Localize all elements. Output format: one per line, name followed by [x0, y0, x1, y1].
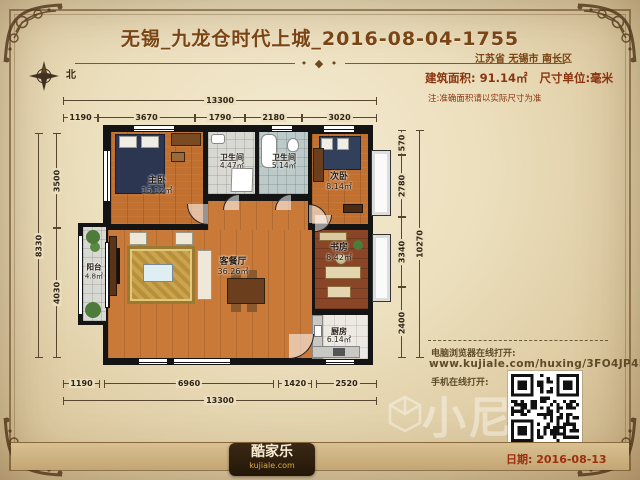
room-label-balcony: 阳台4.8㎡ — [85, 264, 103, 281]
dim-left-seg-2: 4030 — [56, 228, 57, 358]
dim-right-seg-3: 3340 — [401, 217, 402, 287]
logo-domain: kujiale.com — [229, 462, 315, 470]
building-area-value: 建筑面积: 91.14㎡ — [425, 71, 527, 85]
room-label-bath2: 卫生间5.14㎡ — [272, 153, 296, 171]
room-label-living: 客餐厅36.26㎡ — [218, 257, 249, 277]
dim-right-seg-4: 2400 — [401, 287, 402, 358]
room-label-kitchen: 厨房6.14㎡ — [327, 327, 351, 345]
dim-top-seg-1: 1190 — [63, 117, 98, 118]
bedroom2-dresser — [343, 204, 363, 213]
north-label: 北 — [66, 66, 76, 81]
dim-top-seg-2: 3670 — [98, 117, 195, 118]
study-shelf — [319, 232, 347, 241]
window-master-left — [103, 150, 111, 202]
dim-right-total: 10270 — [419, 130, 420, 358]
balcony-plant-2 — [85, 302, 101, 318]
building-area-line: 建筑面积: 91.14㎡ 尺寸单位:毫米 — [425, 70, 613, 86]
dim-right-seg-1: 570 — [401, 130, 402, 155]
kitchen-stove — [333, 348, 345, 356]
bedroom2-pillow-2 — [337, 138, 349, 150]
dining-chair-4 — [247, 304, 257, 312]
dim-bottom-total: 13300 — [63, 400, 377, 401]
divider-ornament-icon: • ◆ • — [295, 57, 345, 70]
room-label-bedroom2: 次卧8.14㎡ — [326, 172, 352, 192]
watermark: 小尼 — [388, 382, 514, 446]
share-url: www.kujiale.com/huxing/3FO4JP4E6J7U — [429, 358, 640, 370]
armchair-2 — [175, 232, 193, 245]
dim-top-seg-3: 1790 — [195, 117, 245, 118]
master-nightstand — [171, 152, 185, 162]
dim-left-total: 8330 — [38, 133, 39, 358]
tv — [117, 248, 120, 284]
page-title: 无锡_九龙仓时代上城_2016-08-04-1755 — [0, 24, 640, 51]
coffee-table — [143, 264, 173, 282]
master-dresser — [171, 133, 201, 146]
bath1-sink — [211, 134, 225, 144]
bay-window-bedroom2 — [371, 150, 391, 216]
window-living-bottom-2 — [173, 358, 231, 365]
master-pillow-2 — [141, 136, 159, 148]
logo-name: 酷家乐 — [229, 443, 315, 462]
dim-bottom-seg-1: 1190 — [63, 383, 100, 384]
window-balcony-left — [78, 235, 83, 315]
dining-table — [227, 278, 265, 304]
bedroom2-wardrobe — [313, 148, 324, 182]
dim-top-seg-5: 3020 — [302, 117, 377, 118]
floor-plan: 主卧15.12㎡ 卫生间4.47㎡ 卫生间5.14㎡ 次卧8.14㎡ 书房8.4… — [75, 120, 395, 368]
master-pillow-1 — [119, 136, 137, 148]
room-label-master: 主卧15.12㎡ — [142, 176, 173, 196]
header-divider: • ◆ • — [75, 57, 565, 70]
window-bedroom2-top — [323, 125, 355, 133]
floorplan-poster: 无锡_九龙仓时代上城_2016-08-04-1755 江苏省 无锡市 南长区 •… — [0, 0, 640, 480]
bath1-shower — [231, 168, 254, 192]
area-note: 注:准确面积请以实际尺寸为准 — [428, 92, 541, 104]
room-label-bath1: 卫生间4.47㎡ — [220, 153, 244, 171]
dim-bottom-seg-2: 6960 — [104, 383, 274, 384]
dim-bottom-seg-4: 2520 — [316, 383, 377, 384]
dim-left-seg-1: 3500 — [56, 133, 57, 228]
dim-top-seg-4: 2180 — [245, 117, 302, 118]
kitchen-sink — [314, 325, 322, 337]
room-label-study: 书房8.42㎡ — [326, 243, 352, 263]
mobile-open-label: 手机在线打开: — [431, 375, 489, 388]
window-master-top — [133, 125, 175, 132]
unit-label: 尺寸单位:毫米 — [540, 71, 614, 85]
bath2-toilet — [287, 138, 299, 152]
kujiale-logo: 酷家乐 kujiale.com — [229, 443, 315, 476]
armchair-1 — [129, 232, 147, 245]
study-cabinet — [327, 286, 351, 298]
dim-bottom-seg-3: 1420 — [278, 383, 312, 384]
window-living-bottom-1 — [138, 358, 168, 365]
study-desk — [325, 266, 361, 279]
balcony-plant-1 — [86, 230, 100, 244]
dim-top-total: 13300 — [63, 100, 377, 101]
tv-cabinet — [109, 236, 117, 296]
sofa — [197, 250, 212, 300]
compass-icon — [28, 60, 60, 92]
share-divider — [428, 340, 608, 341]
dim-right-seg-2: 2780 — [401, 155, 402, 217]
window-kitchen-bottom — [325, 359, 355, 365]
watermark-cube-icon — [388, 395, 422, 433]
bay-window-study — [372, 234, 391, 302]
qr-code — [508, 371, 582, 445]
date-text: 日期: 2016-08-13 — [506, 451, 607, 467]
window-bath2-top — [271, 125, 293, 132]
dining-chair-3 — [231, 304, 241, 312]
study-plant — [353, 240, 363, 250]
